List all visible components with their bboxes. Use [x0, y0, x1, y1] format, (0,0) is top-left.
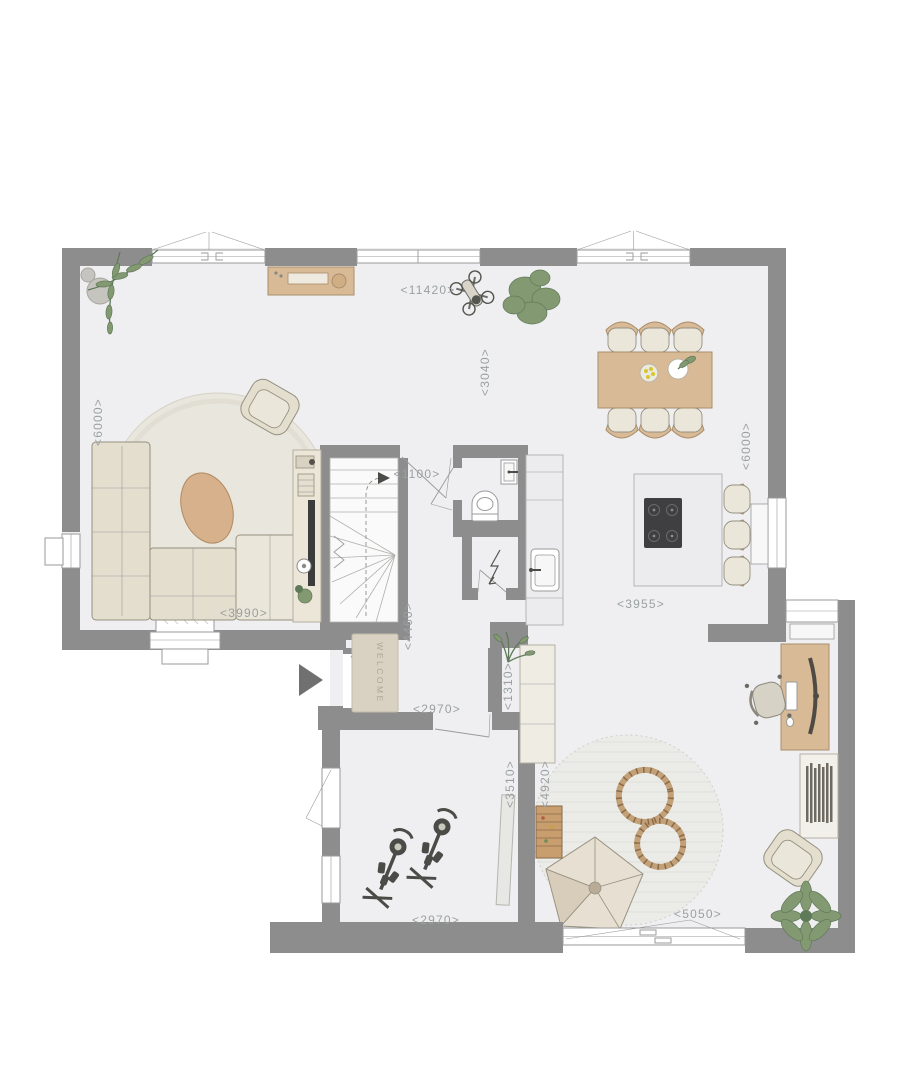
gym-exterior-door — [306, 768, 340, 828]
welcome-mat — [352, 634, 398, 712]
bookshelf — [800, 754, 838, 838]
french-door-right — [577, 231, 690, 263]
flower-bowl — [640, 364, 658, 382]
dim-left-height: <6000> — [91, 398, 105, 446]
window-top-center — [357, 250, 480, 263]
wc — [472, 491, 498, 521]
sideboard — [268, 267, 354, 295]
dim-entry-depth: <1310> — [501, 662, 515, 710]
bar-stool — [724, 520, 750, 550]
dim-hall-width: <2970> — [413, 702, 461, 716]
keyboard — [786, 682, 797, 710]
dining-chair — [672, 408, 704, 438]
mouse — [787, 718, 794, 727]
staircase — [330, 458, 398, 622]
cooktop — [644, 498, 682, 548]
window-desk-alcove — [786, 600, 838, 639]
floor-plan: WELCOME — [0, 0, 911, 1080]
dim-patio-door: <5050> — [674, 907, 722, 921]
toy-dot — [550, 825, 554, 829]
bar-stool — [724, 484, 750, 514]
tv-cabinet — [293, 450, 321, 622]
welcome-mat-text: WELCOME — [375, 642, 385, 703]
toy-dot — [541, 816, 545, 820]
window-left-wall — [45, 534, 80, 568]
toy-bench — [536, 806, 562, 858]
dining-chair — [672, 322, 704, 352]
dining-chair — [639, 322, 671, 352]
kitchen-island — [634, 474, 722, 586]
toy-dot — [544, 839, 548, 843]
tall-cabinets — [520, 645, 555, 763]
dim-right-height: <6000> — [739, 422, 753, 470]
floor-plan-drawing: WELCOME — [0, 0, 911, 1080]
french-door-left — [152, 232, 265, 263]
dim-dining-depth: <3040> — [478, 348, 492, 396]
dim-top-width: <11420> — [401, 283, 456, 297]
kitchen-sink — [529, 549, 559, 591]
dining-area — [598, 322, 712, 438]
bar-stool — [724, 556, 750, 586]
kitchen-counter — [526, 455, 563, 625]
stone-decor — [81, 268, 95, 282]
dim-island-width: <3955> — [617, 597, 665, 611]
gym-window — [322, 856, 340, 903]
stacked-decor — [298, 474, 314, 496]
toilet-sink — [501, 460, 518, 484]
window-right-kitchen — [751, 498, 786, 568]
tv — [308, 500, 315, 586]
window-living-bottom — [150, 614, 220, 664]
sideboard-bowl — [332, 274, 346, 288]
dining-chair — [606, 322, 638, 352]
dim-corridor: <4460> — [401, 602, 415, 650]
sideboard-tray — [288, 273, 328, 284]
dim-gym-depth: <3510> — [503, 760, 517, 808]
dining-chair — [606, 408, 638, 438]
entrance-arrow — [299, 664, 323, 696]
dim-play-depth: <4920> — [538, 760, 552, 808]
dim-gym-width: <2970> — [412, 913, 460, 927]
dining-chair — [639, 408, 671, 438]
dim-stair-door: <1100> — [393, 467, 440, 481]
dim-living-width: <3990> — [220, 606, 268, 620]
